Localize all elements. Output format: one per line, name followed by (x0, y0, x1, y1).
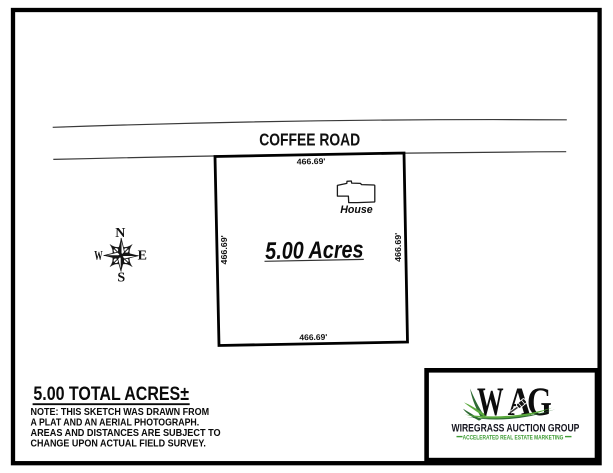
svg-text:466.69': 466.69' (393, 233, 403, 262)
svg-text:5.00 TOTAL ACRES±: 5.00 TOTAL ACRES± (33, 384, 189, 405)
svg-text:466.69': 466.69' (297, 157, 326, 167)
svg-text:466.69': 466.69' (299, 333, 327, 343)
svg-text:G: G (527, 379, 552, 424)
svg-text:AREAS AND DISTANCES ARE SUBJEC: AREAS AND DISTANCES ARE SUBJECT TO (31, 428, 221, 439)
svg-text:WIREGRASS AUCTION GROUP: WIREGRASS AUCTION GROUP (452, 422, 580, 434)
svg-text:W: W (94, 249, 102, 264)
svg-text:CHANGE UPON ACTUAL FIELD SURVE: CHANGE UPON ACTUAL FIELD SURVEY. (31, 438, 206, 449)
svg-text:House: House (340, 204, 373, 216)
svg-text:E: E (138, 249, 147, 264)
svg-text:ACCELERATED REAL ESTATE MARKET: ACCELERATED REAL ESTATE MARKETING (463, 435, 564, 442)
svg-text:COFFEE ROAD: COFFEE ROAD (259, 130, 360, 150)
svg-text:NOTE: THIS SKETCH WAS DRAWN FR: NOTE: THIS SKETCH WAS DRAWN FROM (31, 407, 210, 418)
svg-text:466.69': 466.69' (219, 235, 229, 264)
svg-text:S: S (117, 270, 125, 285)
svg-text:A PLAT AND AN AERIAL PHOTOGRAP: A PLAT AND AN AERIAL PHOTOGRAPH. (31, 418, 200, 429)
svg-text:N: N (115, 226, 125, 241)
